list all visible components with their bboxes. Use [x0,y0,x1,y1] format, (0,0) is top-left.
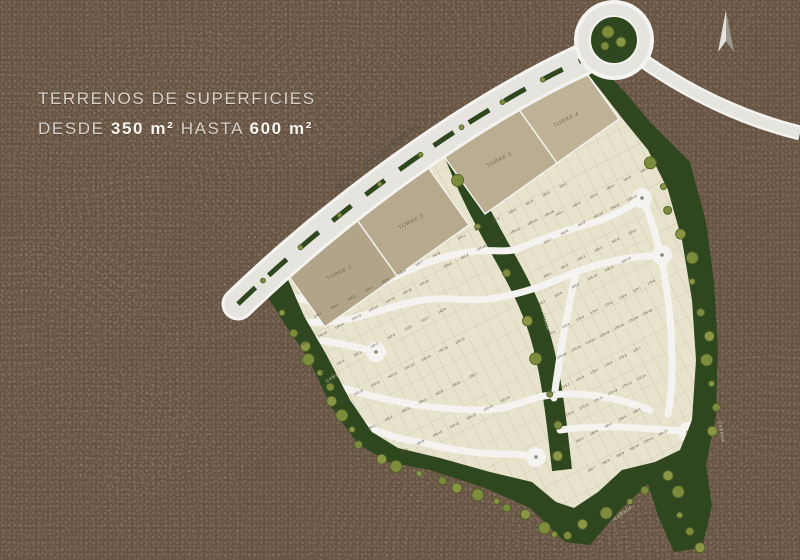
tree-icon [261,278,266,283]
tree-icon [553,451,563,461]
cul-de-sac-center [660,253,664,257]
tree-icon [416,471,422,477]
tree-icon [279,310,285,316]
tree-icon [672,486,684,498]
tree-icon [418,152,423,157]
tree-icon [327,396,337,406]
tree-icon [438,477,446,485]
map-canvas: BLVD. BOSQUEREALTORRE 1TORRE 2TORRE 3TOR… [0,0,800,560]
tree-icon [677,512,683,518]
tree-icon [695,543,705,553]
tree-icon [459,125,464,130]
exit-road [645,62,800,133]
tree-icon [336,409,348,421]
tree-icon [503,269,511,277]
surface-max: 600 m² [250,119,313,138]
tree-icon [494,498,500,504]
tree-icon [707,426,717,436]
surface-min: 350 m² [111,119,174,138]
tree-icon [540,77,545,82]
tree-icon [712,403,720,411]
tree-icon [551,531,557,537]
roundabout-island [590,16,638,64]
desde-label: DESDE [38,119,105,138]
cul-de-sac-center [374,350,378,354]
tree-icon [472,489,484,501]
tree-icon [664,206,672,214]
tree-icon [601,42,609,50]
tree-icon [390,460,402,472]
tree-icon [500,100,505,105]
tree-icon [290,329,298,337]
tree-icon [663,471,673,481]
tree-icon [602,26,614,38]
cul-de-sac-center [534,455,538,459]
tree-icon [564,532,572,540]
tree-icon [704,331,714,341]
tree-icon [523,316,533,326]
headline-line1: TERRENOS DE SUPERFICIES [38,84,316,114]
tree-icon [349,427,355,433]
tree-icon [302,354,314,366]
tree-icon [503,504,511,512]
tree-icon [686,252,698,264]
headline-line2: DESDE 350 m² HASTA 600 m² [38,114,316,144]
tree-icon [298,245,303,250]
tree-icon [452,174,464,186]
tree-icon [337,213,342,218]
tree-icon [578,519,588,529]
tree-icon [354,441,362,449]
tree-icon [660,184,666,190]
tree-icon [521,509,531,519]
tree-icon [697,308,705,316]
tree-icon [326,383,334,391]
canada-label: CAÑADA [717,421,726,443]
tree-icon [377,182,382,187]
tree-icon [686,527,694,535]
hasta-label: HASTA [181,119,243,138]
tree-icon [701,354,713,366]
tree-icon [641,486,649,494]
tree-icon [452,483,462,493]
tree-icon [600,507,612,519]
headline: TERRENOS DE SUPERFICIES DESDE 350 m² HAS… [38,84,316,144]
tree-icon [616,37,626,47]
tree-icon [676,229,686,239]
tree-icon [689,279,695,285]
tree-icon [538,522,550,534]
tree-icon [530,353,542,365]
tree-icon [377,454,387,464]
north-arrow-right [726,10,734,52]
cul-de-sac-center [640,196,644,200]
tree-icon [709,381,715,387]
